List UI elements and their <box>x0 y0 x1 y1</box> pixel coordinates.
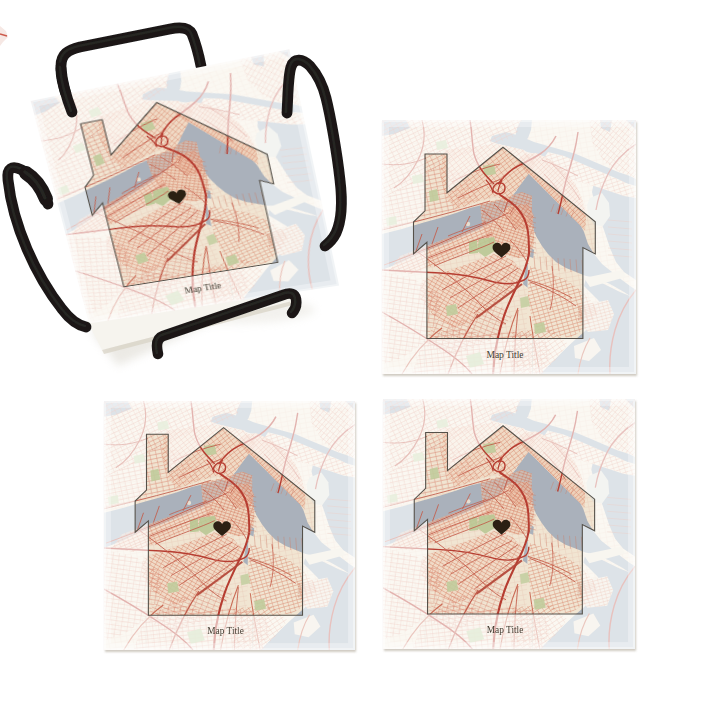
svg-text:Map Title: Map Title <box>487 623 524 635</box>
svg-text:Map Title: Map Title <box>207 624 244 636</box>
svg-text:Map Title: Map Title <box>487 348 524 360</box>
